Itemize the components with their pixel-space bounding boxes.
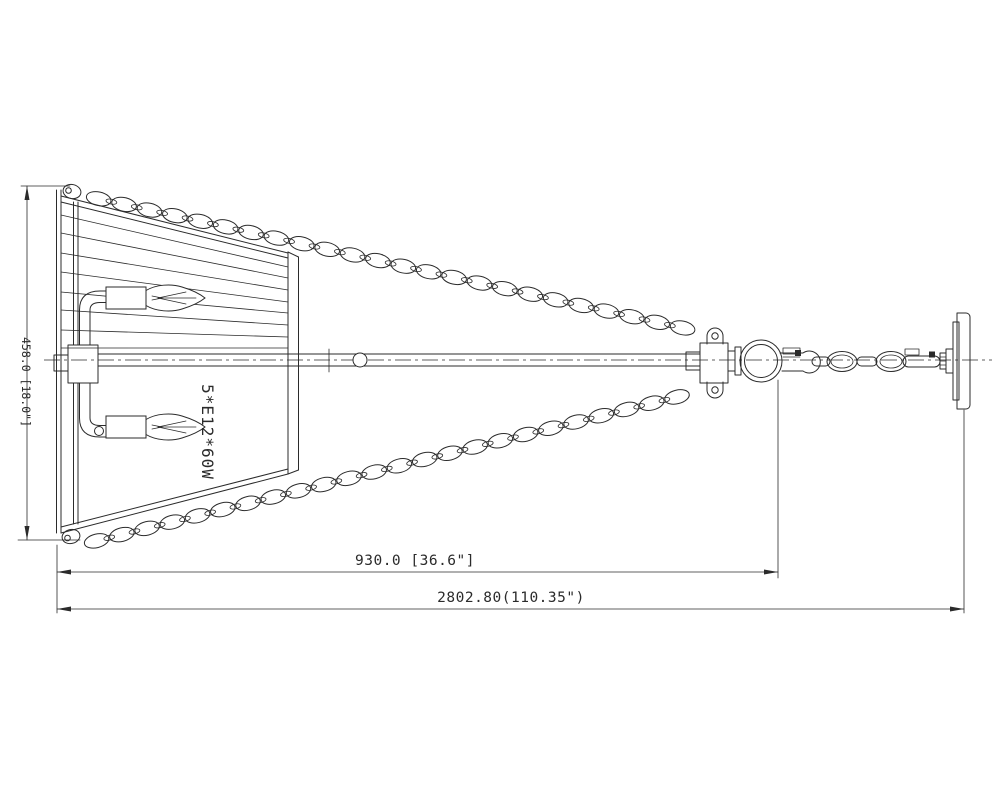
hub-block	[68, 345, 98, 383]
dim-height-text: 458.0 [18.0"]	[19, 337, 33, 427]
rod-hole	[353, 353, 367, 367]
lower-arm	[80, 383, 107, 437]
bulb-spec-label: 5*E12*60W	[198, 384, 217, 480]
center-rod	[98, 349, 700, 372]
rod-end-coupler	[686, 352, 700, 370]
canopy-inner-plate	[953, 322, 959, 400]
technical-drawing: 5*E12*60W	[0, 0, 1000, 800]
right-hook	[903, 349, 940, 367]
dimension-height-458: 458.0 [18.0"]	[18, 186, 80, 540]
lower-socket	[106, 416, 146, 438]
lower-support-chain	[83, 387, 691, 550]
chain-connector-assembly	[686, 328, 820, 398]
hanging-ring-inner	[745, 345, 778, 378]
connector-top-ear	[707, 328, 723, 344]
canopy-screw-hardware	[940, 349, 953, 373]
arm-elbow-knob	[95, 427, 104, 436]
dim-overall-text: 2802.80(110.35")	[437, 590, 585, 606]
upper-socket	[106, 287, 146, 309]
left-hook	[780, 348, 820, 373]
dim-inner-text: 930.0 [36.6"]	[355, 553, 475, 569]
chain-connector-link	[857, 357, 877, 366]
chain-link	[876, 352, 906, 372]
connector-bottom-ear	[707, 382, 723, 398]
upper-arm	[80, 291, 107, 345]
ceiling-chain-and-canopy	[812, 313, 970, 409]
connector-block	[700, 343, 728, 383]
shade-top-lug	[62, 183, 83, 201]
upper-bulb	[146, 285, 205, 311]
lower-bulb	[146, 414, 205, 440]
upper-support-chain	[85, 189, 696, 337]
chain-link	[827, 352, 857, 372]
drawing-sheet: 5*E12*60W	[0, 0, 1000, 800]
shade-right-edge	[288, 252, 299, 474]
hanging-ring-outer	[740, 340, 782, 382]
shade-band-lines	[61, 215, 288, 348]
